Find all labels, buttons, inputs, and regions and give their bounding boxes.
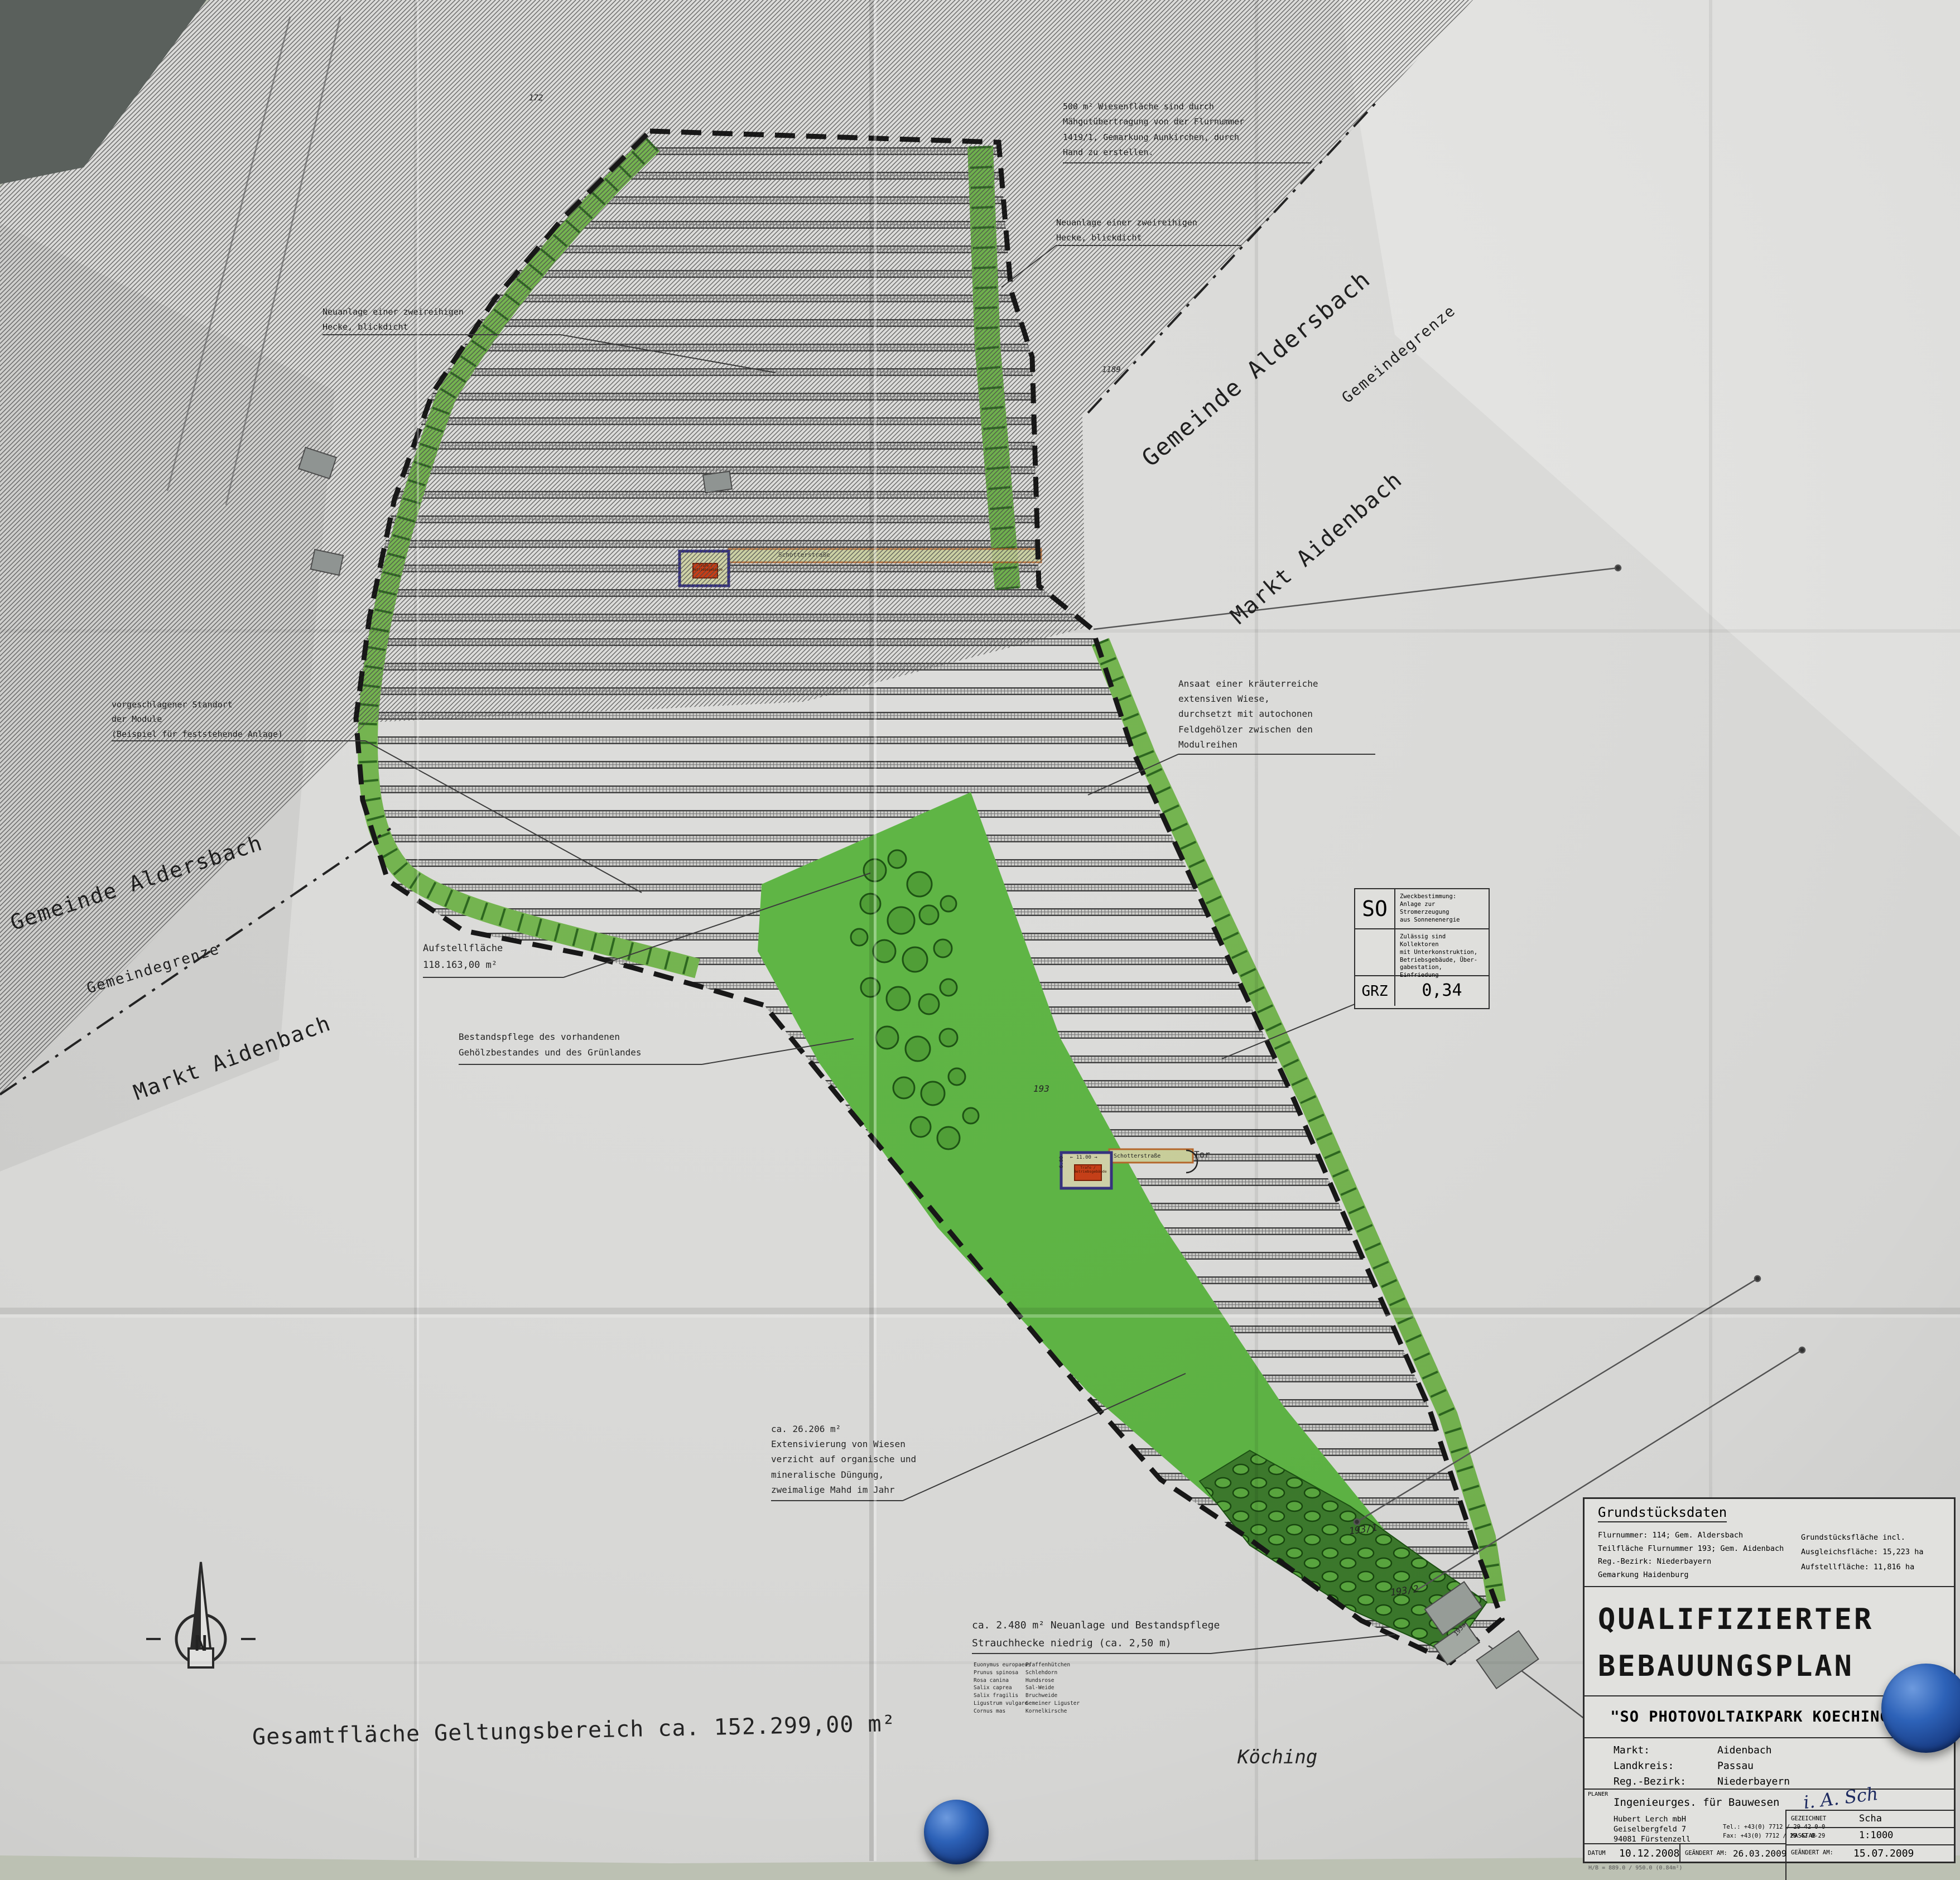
grundstuecksdaten-title: Grundstücksdaten — [1598, 1505, 1727, 1522]
region-labels: Markt: Landkreis: Reg.-Bezirk: — [1614, 1743, 1686, 1790]
legend-grz-value: 0,34 — [1395, 976, 1489, 1006]
note-extensivierung: ca. 26.206 m² Extensivierung von Wiesen … — [771, 1421, 916, 1497]
note-ansaat: Ansaat einer kräuterreiche extensiven Wi… — [1178, 676, 1318, 752]
note-bestandspflege: Bestandspflege des vorhandenen Gehölzbes… — [459, 1029, 642, 1060]
geaendert-label: GEÄNDERT AM: — [1791, 1849, 1833, 1856]
legend-so-text: Zweckbestimmung: Anlage zur Stromerzeugu… — [1395, 889, 1489, 928]
place-label-koeching: Köching — [1237, 1742, 1317, 1774]
titleblock-footnote: H/B = 889.0 / 950.0 (0.84m²) — [1588, 1863, 1683, 1873]
titleblock-dates: DATUM 10.12.2008 GEÄNDERT AM: 26.03.2009 — [1585, 1843, 1785, 1863]
grundstuecksdaten-right: Grundstücksfläche incl. Ausgleichsfläche… — [1801, 1530, 1923, 1574]
legend-box: SO Zweckbestimmung: Anlage zur Stromerze… — [1354, 888, 1490, 1009]
titleblock-grundstuecksdaten: Grundstücksdaten Flurnummer: 114; Gem. A… — [1585, 1499, 1954, 1587]
note-strauchhecke: ca. 2.480 m² Neuanlage und Bestandspfleg… — [972, 1617, 1220, 1652]
label-schotterstrasse-upper: Schotterstraße — [778, 550, 830, 561]
gezeichnet-label: GEZEICHNET — [1791, 1815, 1826, 1822]
label-trafo-lower: Trafo / Betriebsgebäude — [1074, 1166, 1102, 1174]
note-hecke-left: Neuanlage einer zweireihigen Hecke, blic… — [322, 305, 464, 335]
label-schotterstrasse-lower: Schotterstraße — [1114, 1151, 1160, 1161]
datum-geaendert-value: 26.03.2009 — [1733, 1848, 1786, 1859]
parcel-1189: 1189 — [1102, 364, 1121, 377]
north-label: N — [189, 1626, 213, 1662]
species-list-german: Pfaffenhütchen Schlehdorn Hundsrose Sal-… — [1025, 1661, 1080, 1715]
label-tor: Tor — [1194, 1147, 1210, 1162]
geaendert-value: 15.07.2009 — [1853, 1848, 1914, 1859]
datum-geaendert-label: GEÄNDERT AM: — [1685, 1850, 1727, 1857]
dim-width-label: ← 11.00 → — [1070, 1154, 1097, 1162]
gezeichnet-value: Scha — [1859, 1813, 1882, 1824]
note-aufstellflaeche: Aufstellfläche 118.163,00 m² — [423, 941, 503, 974]
species-list-latin: Euonymus europaeus Prunus spinosa Rosa c… — [974, 1661, 1031, 1715]
legend-zulaessig-text: Zulässig sind Kollektoren mit Unterkonst… — [1395, 929, 1489, 975]
magnet-bottom — [924, 1800, 989, 1864]
masstab-label: MASSTAB — [1791, 1833, 1815, 1839]
datum-value: 10.12.2008 — [1619, 1848, 1679, 1859]
parcel-172: 172 — [529, 92, 543, 105]
datum-label: DATUM — [1588, 1850, 1606, 1857]
revision-table: GEZEICHNET Scha MASSTAB 1:1000 GEÄNDERT … — [1785, 1810, 1954, 1880]
note-wiesenflaeche: 500 m² Wiesenfläche sind durch Mähgutübe… — [1063, 99, 1244, 160]
dim-height-label: 6.00 — [1058, 1156, 1066, 1168]
planer-address: Hubert Lerch mbH Geiselbergfeld 7 94081 … — [1614, 1814, 1691, 1845]
legend-so-symbol: SO — [1355, 889, 1395, 928]
note-hecke-right: Neuanlage einer zweireihigen Hecke, blic… — [1056, 215, 1197, 245]
legend-grz-symbol: GRZ — [1355, 976, 1395, 1006]
masstab-value: 1:1000 — [1859, 1830, 1893, 1841]
grundstuecksdaten-left: Flurnummer: 114; Gem. Aldersbach Teilflä… — [1598, 1529, 1784, 1582]
parcel-193: 193 — [1033, 1081, 1049, 1096]
planer-firm: Ingenieurges. für Bauwesen — [1614, 1796, 1779, 1809]
label-trafo-upper: Trafo / Betriebsgebäude — [692, 565, 719, 572]
region-values: Aidenbach Passau Niederbayern — [1717, 1743, 1790, 1790]
photographed-site-plan: 500 m² Wiesenfläche sind durch Mähgutübe… — [0, 0, 1960, 1880]
planer-label: PLANER — [1588, 1791, 1608, 1797]
note-standort-module: vorgeschlagener Standort der Module (Bei… — [112, 697, 283, 741]
titleblock-region: Markt: Landkreis: Reg.-Bezirk: Aidenbach… — [1585, 1737, 1954, 1790]
